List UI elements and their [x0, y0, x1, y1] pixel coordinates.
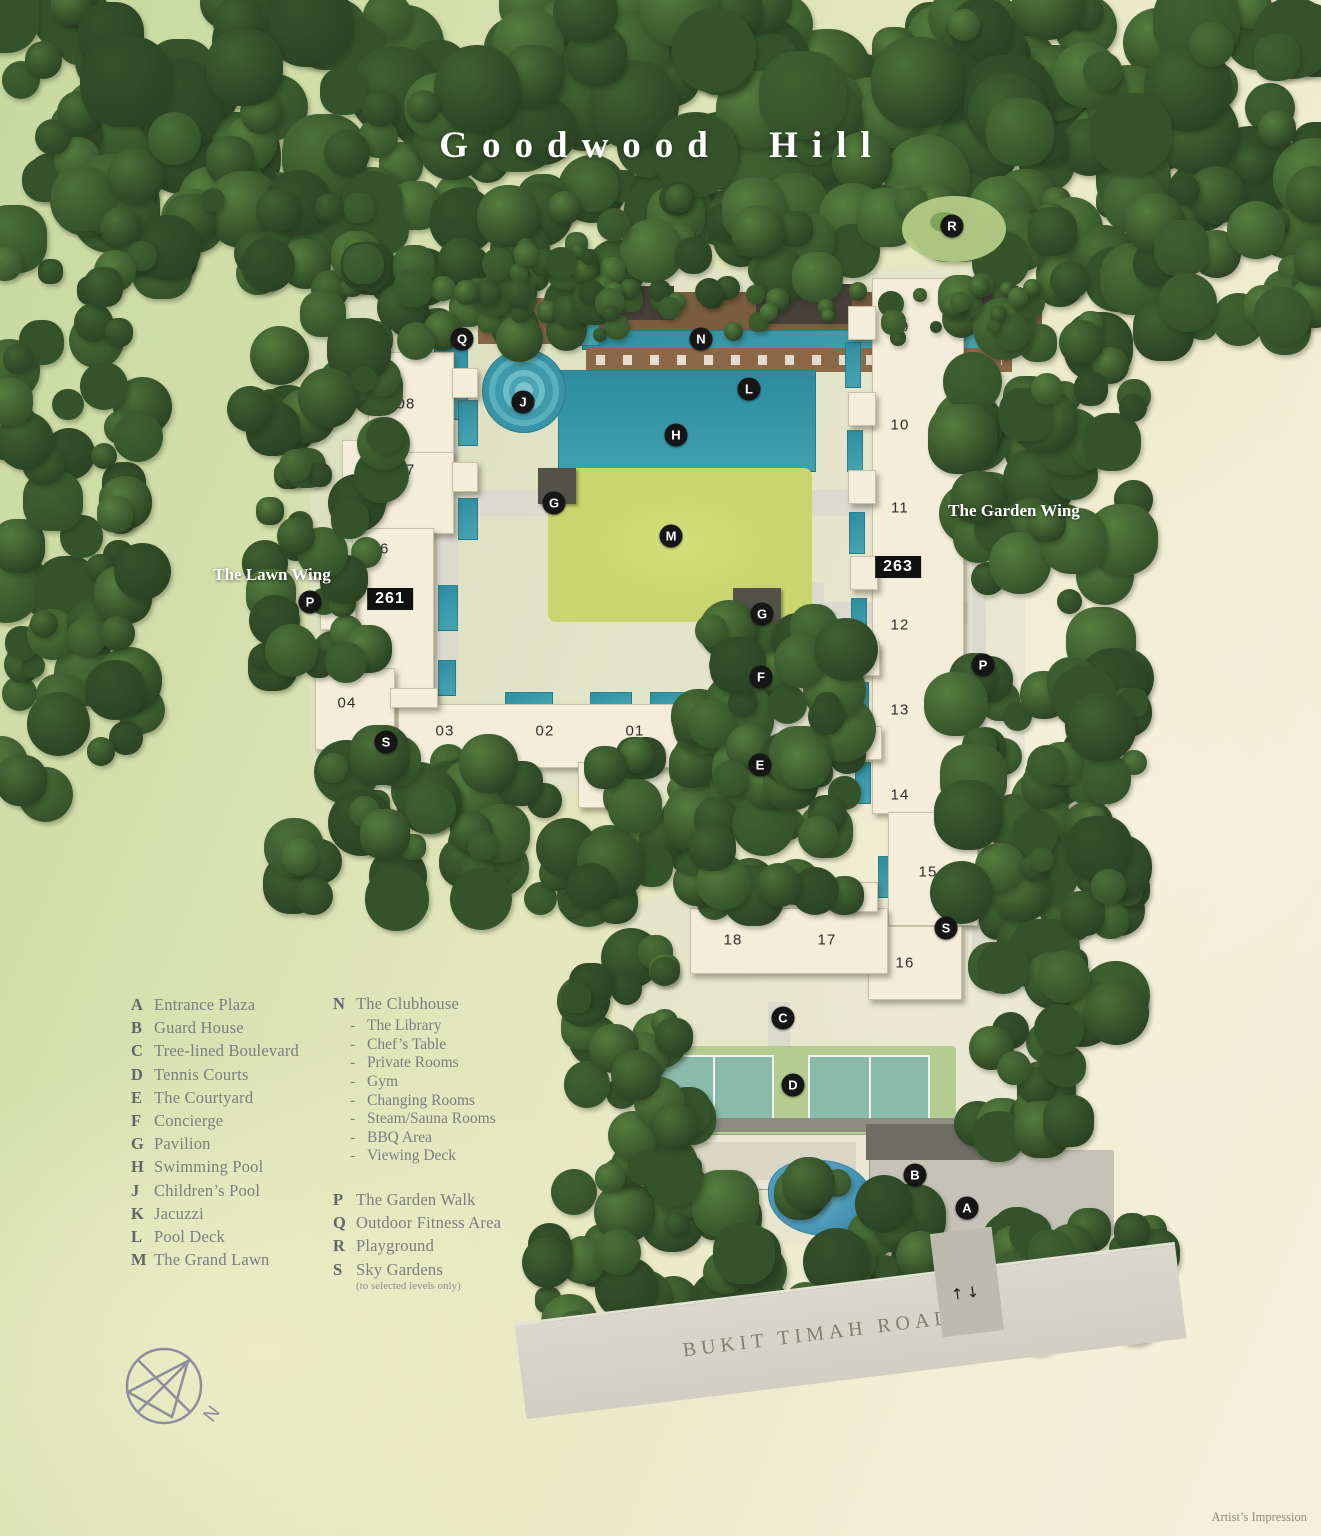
- entrance-canopy: [866, 1124, 994, 1160]
- legend-key: E: [131, 1089, 154, 1106]
- building-label-01: 01: [625, 723, 644, 740]
- marker-S-2: S: [935, 917, 958, 940]
- entrance-driveway: [930, 1227, 1004, 1338]
- building-block: [452, 368, 478, 398]
- building-label-05: 05: [370, 639, 389, 656]
- marker-Q: Q: [451, 328, 474, 351]
- marker-N: N: [690, 328, 713, 351]
- legend-label: Tree-lined Boulevard: [154, 1042, 299, 1059]
- page-title: Goodwood Hill: [439, 124, 885, 167]
- marker-D: D: [782, 1074, 805, 1097]
- legend-item-N: NThe Clubhouse: [333, 995, 643, 1012]
- legend-key: K: [131, 1205, 154, 1222]
- legend-dash: -: [350, 1148, 367, 1163]
- legend-dash: -: [350, 1018, 367, 1033]
- private-pool: [853, 682, 869, 724]
- tennis-court-2: [808, 1055, 930, 1125]
- legend-label: The Courtyard: [154, 1089, 253, 1106]
- building-label-02: 02: [535, 723, 554, 740]
- legend-label: Entrance Plaza: [154, 996, 255, 1013]
- marker-L: L: [738, 378, 761, 401]
- legend-key: S: [333, 1261, 356, 1278]
- building-block: [848, 306, 876, 340]
- private-pool: [458, 400, 478, 446]
- legend-label: The Grand Lawn: [154, 1251, 270, 1268]
- building-block: [390, 688, 438, 708]
- marker-G: G: [543, 492, 566, 515]
- building-label-08: 08: [396, 396, 415, 413]
- legend-clubhouse-sub-6: -Steam/Sauna Rooms: [350, 1111, 643, 1126]
- legend-key: G: [131, 1135, 154, 1152]
- wing-label-lawn: The Lawn Wing: [213, 565, 330, 585]
- building-block: [848, 392, 876, 426]
- compass-north-label: N: [200, 1402, 225, 1426]
- legend-key: N: [333, 995, 356, 1012]
- legend-clubhouse-sub-3: -Private Rooms: [350, 1055, 643, 1070]
- building-label-12: 12: [890, 617, 909, 634]
- building-block: [452, 462, 478, 492]
- entrance-plaza-paving: [862, 1150, 1114, 1236]
- legend-clubhouse-sub-5: -Changing Rooms: [350, 1093, 643, 1108]
- legend-sub-label: The Library: [367, 1018, 441, 1033]
- legend-key: P: [333, 1191, 356, 1208]
- marker-R: R: [941, 215, 964, 238]
- private-pool: [568, 302, 600, 346]
- legend-clubhouse-sub-7: -BBQ Area: [350, 1130, 643, 1145]
- legend-clubhouse-sub-8: -Viewing Deck: [350, 1148, 643, 1163]
- legend-key: B: [131, 1019, 154, 1036]
- unit-number-badge-261: 261: [367, 588, 413, 610]
- building-label-11: 11: [891, 500, 909, 517]
- marker-H: H: [665, 424, 688, 447]
- building-label-03: 03: [435, 723, 454, 740]
- building-label-14: 14: [890, 787, 909, 804]
- legend-label: The Garden Walk: [356, 1191, 476, 1208]
- private-pool: [438, 585, 458, 631]
- legend-label: Pavilion: [154, 1135, 211, 1152]
- building-label-10: 10: [890, 417, 909, 434]
- legend-label: The Clubhouse: [356, 995, 459, 1012]
- legend-key: R: [333, 1237, 356, 1254]
- legend-key: F: [131, 1112, 154, 1129]
- legend-key: J: [131, 1182, 154, 1199]
- legend-sub-label: Viewing Deck: [367, 1148, 456, 1163]
- walkway: [737, 640, 793, 772]
- legend-dash: -: [350, 1093, 367, 1108]
- legend-item-Q: QOutdoor Fitness Area: [333, 1214, 643, 1231]
- legend-sub-label: Chef’s Table: [367, 1037, 446, 1052]
- clubhouse-roof: [756, 284, 852, 324]
- legend-sub-label: Private Rooms: [367, 1055, 459, 1070]
- attribution: Artist’s Impression: [1212, 1510, 1307, 1525]
- legend-label: Sky Gardens: [356, 1261, 443, 1278]
- legend-label: Playground: [356, 1237, 434, 1254]
- marker-J: J: [512, 391, 535, 414]
- legend-gap: [333, 1167, 643, 1191]
- swimming-pool: [558, 370, 816, 472]
- legend-label: Guard House: [154, 1019, 244, 1036]
- marker-P: P: [299, 591, 322, 614]
- legend-label: Jacuzzi: [154, 1205, 204, 1222]
- legend-label: Pool Deck: [154, 1228, 225, 1245]
- legend-sub-label: Changing Rooms: [367, 1093, 475, 1108]
- legend-key: M: [131, 1251, 154, 1268]
- marker-A: A: [956, 1197, 979, 1220]
- building-block: [854, 726, 882, 760]
- legend-right-column: NThe Clubhouse-The Library-Chef’s Table-…: [333, 995, 643, 1292]
- private-pool: [849, 512, 865, 554]
- legend-key: A: [131, 996, 154, 1013]
- building-label-09: 09: [890, 319, 909, 336]
- marker-G-2: G: [751, 603, 774, 626]
- building-label-16: 16: [895, 955, 914, 972]
- tennis-court-1: [652, 1055, 774, 1125]
- legend-dash: -: [350, 1130, 367, 1145]
- entrance-direction-arrows: ↑↓: [950, 1282, 983, 1304]
- legend-sub-label: BBQ Area: [367, 1130, 432, 1145]
- marker-P-2: P: [972, 654, 995, 677]
- building-block: [850, 556, 878, 590]
- legend-label: Swimming Pool: [154, 1158, 263, 1175]
- unit-number-badge-263: 263: [875, 556, 921, 578]
- legend-dash: -: [350, 1111, 367, 1126]
- building-block: [830, 882, 878, 912]
- site-plan: 010203040506070809101112131415161718 BUK…: [0, 0, 1321, 1536]
- marker-E: E: [749, 754, 772, 777]
- legend-note: (to selected levels only): [356, 1280, 643, 1292]
- building-label-13: 13: [890, 702, 909, 719]
- building-block: [848, 470, 876, 504]
- building-label-06: 06: [370, 541, 389, 558]
- marker-B: B: [904, 1164, 927, 1187]
- legend-item-P: PThe Garden Walk: [333, 1191, 643, 1208]
- legend-key: C: [131, 1042, 154, 1059]
- legend-key: Q: [333, 1214, 356, 1231]
- legend-sub-label: Gym: [367, 1074, 398, 1089]
- legend-key: D: [131, 1066, 154, 1083]
- building-label-07: 07: [396, 462, 415, 479]
- legend-clubhouse-sub-2: -Chef’s Table: [350, 1037, 643, 1052]
- legend-item-R: RPlayground: [333, 1237, 643, 1254]
- legend-dash: -: [350, 1074, 367, 1089]
- wing-label-garden: The Garden Wing: [948, 501, 1080, 521]
- road-label: BUKIT TIMAH ROAD: [682, 1306, 955, 1362]
- clubhouse-roof: [612, 286, 674, 320]
- compass-icon: N: [118, 1342, 243, 1462]
- private-pool: [845, 342, 861, 388]
- legend-dash: -: [350, 1037, 367, 1052]
- legend-label: Outdoor Fitness Area: [356, 1214, 501, 1231]
- building-label-15: 15: [918, 864, 937, 881]
- private-pool: [855, 762, 871, 804]
- legend-clubhouse-sub-4: -Gym: [350, 1074, 643, 1089]
- marker-M: M: [660, 525, 683, 548]
- building-block: [852, 642, 880, 676]
- building-label-18: 18: [723, 932, 742, 949]
- building-block: [578, 762, 630, 808]
- legend-clubhouse-sub-1: -The Library: [350, 1018, 643, 1033]
- building-block: [342, 440, 374, 490]
- building-block: [872, 278, 964, 814]
- building-label-04: 04: [337, 695, 356, 712]
- legend-label: Children’s Pool: [154, 1182, 260, 1199]
- legend-key: H: [131, 1158, 154, 1175]
- legend-key: L: [131, 1228, 154, 1245]
- private-pool: [458, 498, 478, 540]
- marker-F: F: [750, 666, 773, 689]
- private-pool: [705, 884, 765, 904]
- private-pool: [851, 598, 867, 640]
- legend-sub-label: Steam/Sauna Rooms: [367, 1111, 496, 1126]
- legend-label: Concierge: [154, 1112, 223, 1129]
- building-label-17: 17: [817, 932, 836, 949]
- marker-S: S: [375, 731, 398, 754]
- legend-item-S: SSky Gardens: [333, 1261, 643, 1278]
- legend-label: Tennis Courts: [154, 1066, 249, 1083]
- legend-dash: -: [350, 1055, 367, 1070]
- private-pool: [438, 660, 456, 696]
- building-block: [690, 908, 888, 974]
- marker-C: C: [772, 1007, 795, 1030]
- private-pool: [847, 430, 863, 472]
